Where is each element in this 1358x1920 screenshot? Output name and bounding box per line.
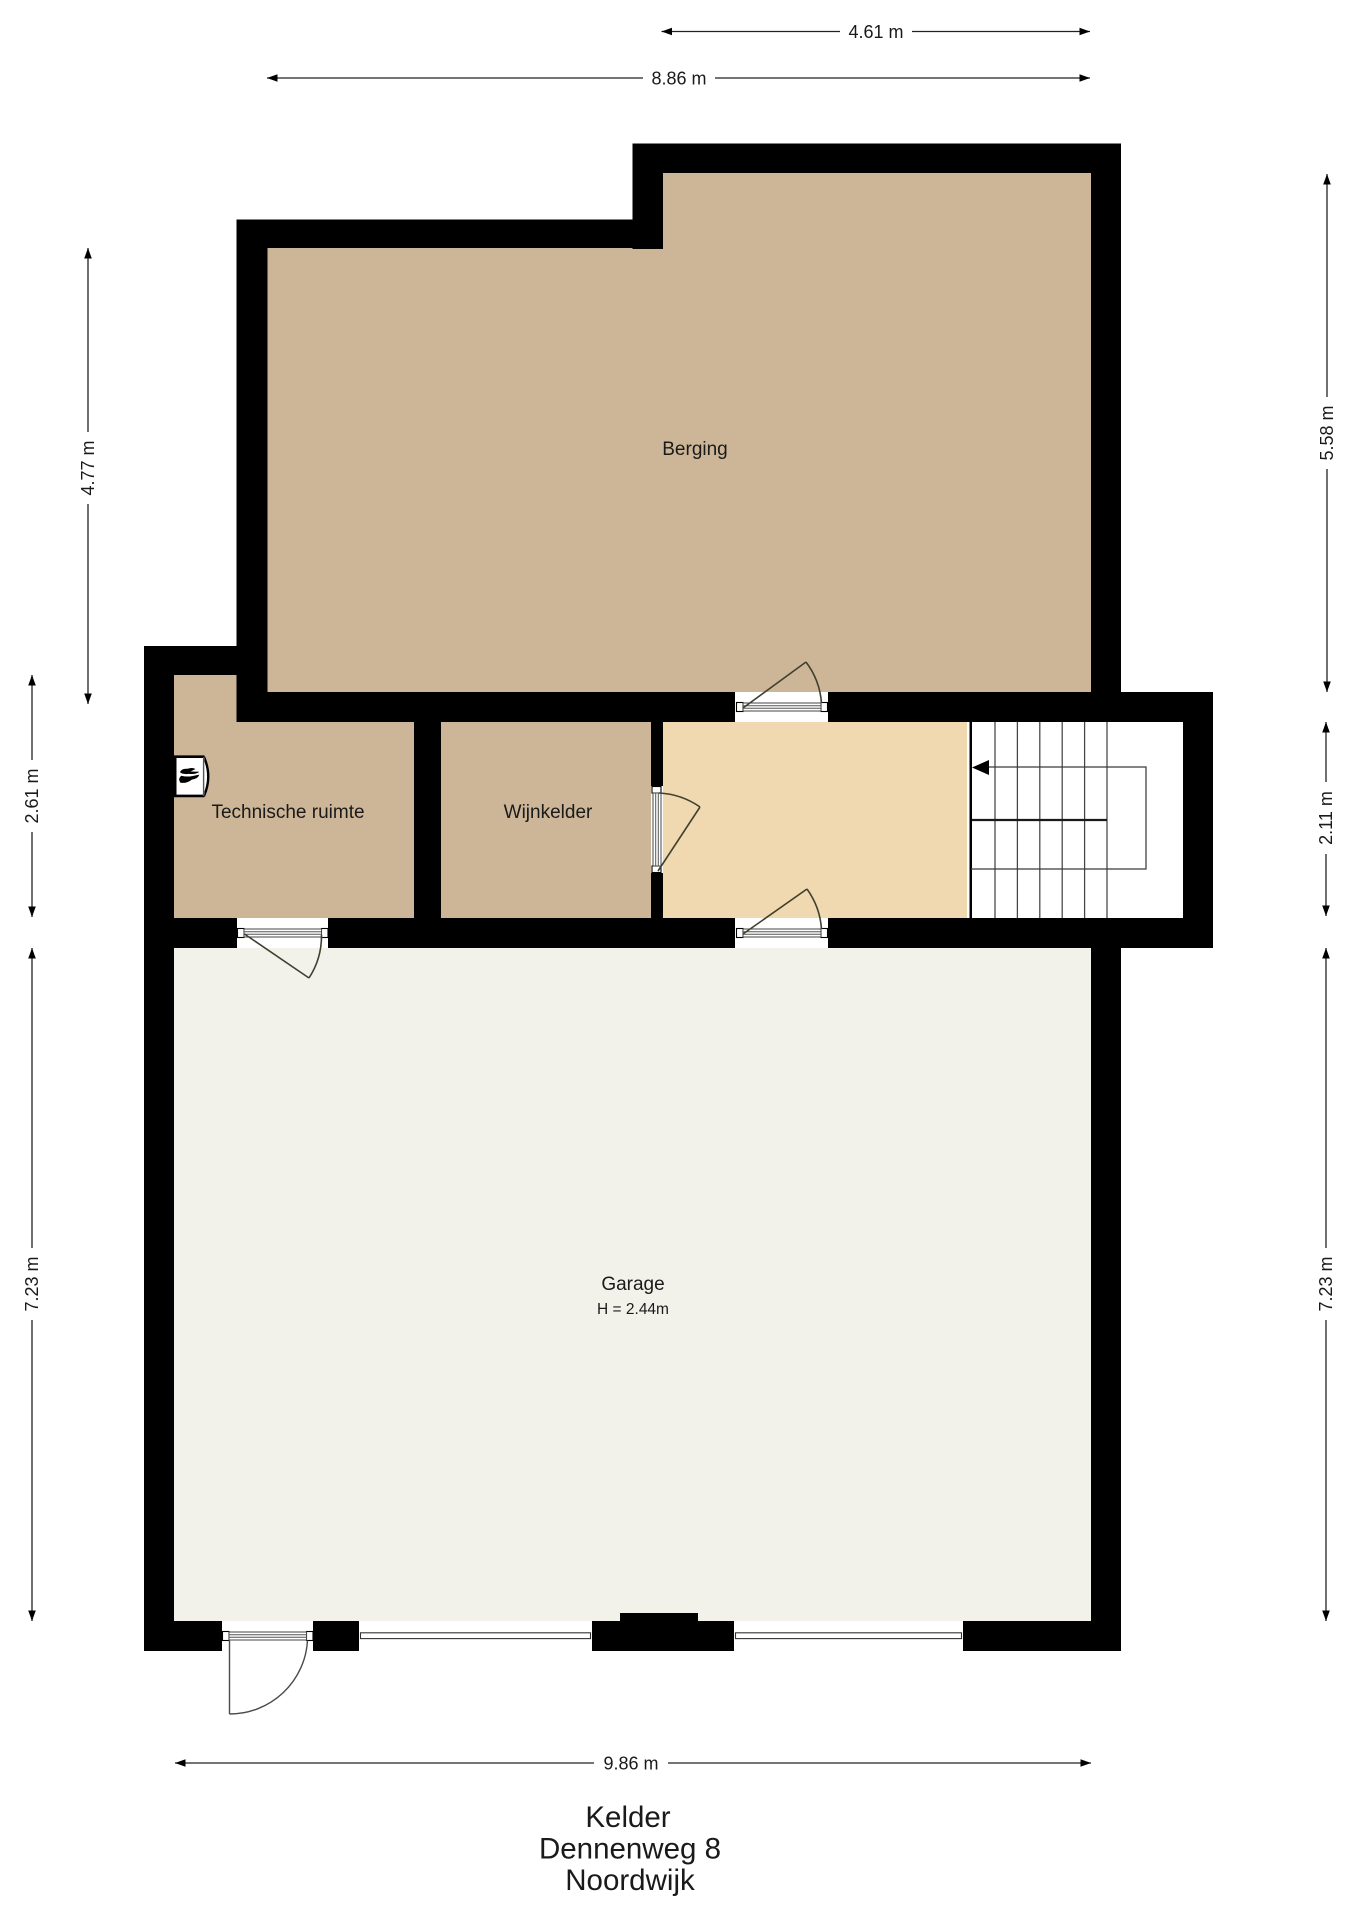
svg-text:8.86 m: 8.86 m bbox=[651, 69, 706, 89]
svg-text:Wijnkelder: Wijnkelder bbox=[504, 802, 593, 823]
svg-text:2.11 m: 2.11 m bbox=[1316, 791, 1336, 845]
svg-text:4.77 m: 4.77 m bbox=[78, 440, 98, 495]
svg-text:9.86 m: 9.86 m bbox=[603, 1754, 658, 1774]
svg-text:4.61 m: 4.61 m bbox=[848, 22, 903, 42]
svg-text:5.58 m: 5.58 m bbox=[1317, 405, 1337, 460]
svg-text:Technische ruimte: Technische ruimte bbox=[211, 802, 364, 823]
svg-text:2.61 m: 2.61 m bbox=[22, 768, 42, 823]
svg-text:Dennenweg 8: Dennenweg 8 bbox=[539, 1833, 721, 1866]
svg-text:H = 2.44m: H = 2.44m bbox=[597, 1301, 669, 1318]
svg-text:Garage: Garage bbox=[601, 1274, 664, 1295]
svg-text:Berging: Berging bbox=[662, 439, 728, 460]
svg-text:7.23 m: 7.23 m bbox=[1316, 1256, 1336, 1311]
svg-text:Noordwijk: Noordwijk bbox=[565, 1864, 695, 1897]
svg-text:7.23 m: 7.23 m bbox=[22, 1256, 42, 1311]
svg-text:Kelder: Kelder bbox=[585, 1801, 670, 1834]
